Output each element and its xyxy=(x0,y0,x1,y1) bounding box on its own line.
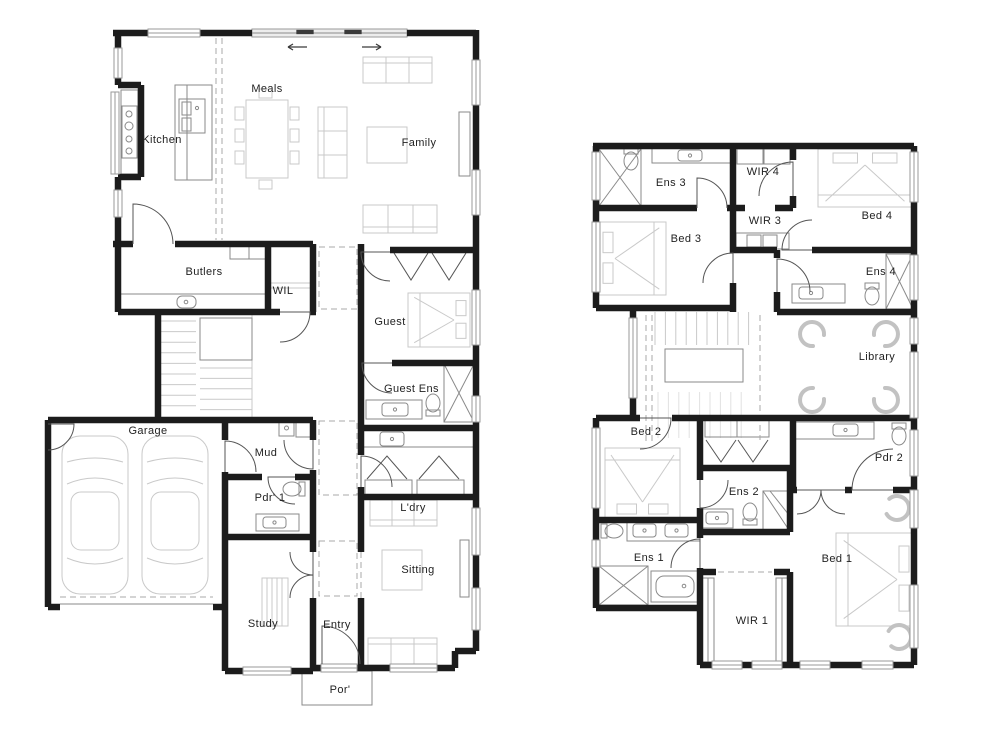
room-label-pdr2: Pdr 2 xyxy=(875,452,903,464)
floor-plan-drawing xyxy=(0,0,981,741)
room-label-entry: Entry xyxy=(323,619,351,631)
room-label-pdr1: Pdr' 1 xyxy=(255,492,286,504)
room-label-wir1: WIR 1 xyxy=(736,615,769,627)
room-label-ens2: Ens 2 xyxy=(729,486,759,498)
walls-layer xyxy=(48,30,914,671)
room-label-meals: Meals xyxy=(251,83,282,95)
room-label-ens1: Ens 1 xyxy=(634,552,664,564)
fixtures-layer xyxy=(60,29,913,705)
room-label-bed2: Bed 2 xyxy=(631,426,662,438)
room-label-guest: Guest xyxy=(374,316,405,328)
room-label-ens3: Ens 3 xyxy=(656,177,686,189)
room-label-bed4: Bed 4 xyxy=(862,210,893,222)
room-label-bed3: Bed 3 xyxy=(671,233,702,245)
room-label-porch: Por' xyxy=(330,684,351,696)
room-label-wir4: WIR 4 xyxy=(747,166,780,178)
room-label-study: Study xyxy=(248,618,278,630)
room-label-family: Family xyxy=(402,137,437,149)
room-label-wir3: WIR 3 xyxy=(749,215,782,227)
windows-layer xyxy=(111,29,918,675)
room-label-butlers: Butlers xyxy=(185,266,222,278)
room-label-sitting: Sitting xyxy=(401,564,434,576)
room-label-mud: Mud xyxy=(255,447,278,459)
doors-layer xyxy=(48,162,893,664)
room-label-library: Library xyxy=(859,351,895,363)
room-label-ens4: Ens 4 xyxy=(866,266,896,278)
room-label-bed1: Bed 1 xyxy=(822,553,853,565)
floor-plans: Kitchen Meals Family Butlers WIL Guest G… xyxy=(0,0,981,741)
room-label-kitchen: Kitchen xyxy=(142,134,182,146)
room-label-garage: Garage xyxy=(128,425,167,437)
room-label-wil: WIL xyxy=(273,285,294,297)
room-label-guest-ens: Guest Ens xyxy=(384,383,430,395)
room-label-ldry: L'dry xyxy=(400,502,426,514)
